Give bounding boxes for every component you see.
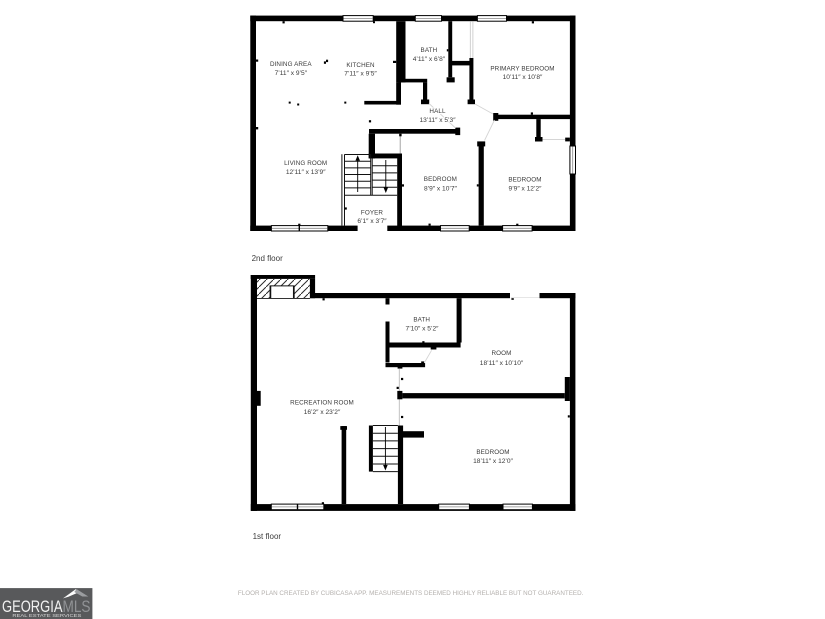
svg-text:PRIMARY BEDROOM: PRIMARY BEDROOM [490,66,554,73]
svg-text:HALL: HALL [429,108,446,115]
svg-text:LIVING ROOM: LIVING ROOM [284,160,327,167]
svg-text:10’11″ x 10’8″: 10’11″ x 10’8″ [503,74,543,81]
svg-text:13’11″ x 5’3″: 13’11″ x 5’3″ [419,117,456,124]
svg-text:BEDROOM: BEDROOM [508,176,541,183]
svg-text:DINING AREA: DINING AREA [270,61,312,68]
svg-text:RECREATION ROOM: RECREATION ROOM [290,400,354,407]
svg-text:FOYER: FOYER [361,209,384,216]
svg-text:6’1″ x 3’7″: 6’1″ x 3’7″ [357,218,387,225]
svg-text:BATH: BATH [421,47,438,54]
svg-text:BATH: BATH [413,317,430,324]
svg-text:KITCHEN: KITCHEN [346,62,375,69]
svg-text:BEDROOM: BEDROOM [424,176,457,183]
svg-text:16’2″ x 23’2″: 16’2″ x 23’2″ [304,409,341,416]
svg-text:4’11″ x 6’8″: 4’11″ x 6’8″ [413,56,446,63]
svg-text:ROOM: ROOM [492,350,512,357]
svg-text:7’11″ x 9’5″: 7’11″ x 9’5″ [344,71,377,78]
svg-text:18’11″ x 12’0″: 18’11″ x 12’0″ [473,458,513,465]
svg-text:12’11″ x 13’9″: 12’11″ x 13’9″ [286,169,326,176]
svg-text:7’11″ x 9’5″: 7’11″ x 9’5″ [275,70,308,77]
svg-text:REAL ESTATE SERVICES: REAL ESTATE SERVICES [12,613,81,618]
svg-text:7’10″ x 5’2″: 7’10″ x 5’2″ [406,326,440,333]
svg-text:2nd floor: 2nd floor [252,254,283,263]
svg-text:BEDROOM: BEDROOM [476,449,509,456]
svg-text:9’9″ x 12’2″: 9’9″ x 12’2″ [509,186,543,193]
svg-text:FLOOR PLAN CREATED BY CUBICASA: FLOOR PLAN CREATED BY CUBICASA APP. MEAS… [238,590,584,597]
svg-text:8’9″ x 10’7″: 8’9″ x 10’7″ [424,186,458,193]
svg-text:1st floor: 1st floor [253,532,282,541]
svg-text:18’11″ x 10’10″: 18’11″ x 10’10″ [480,360,524,367]
